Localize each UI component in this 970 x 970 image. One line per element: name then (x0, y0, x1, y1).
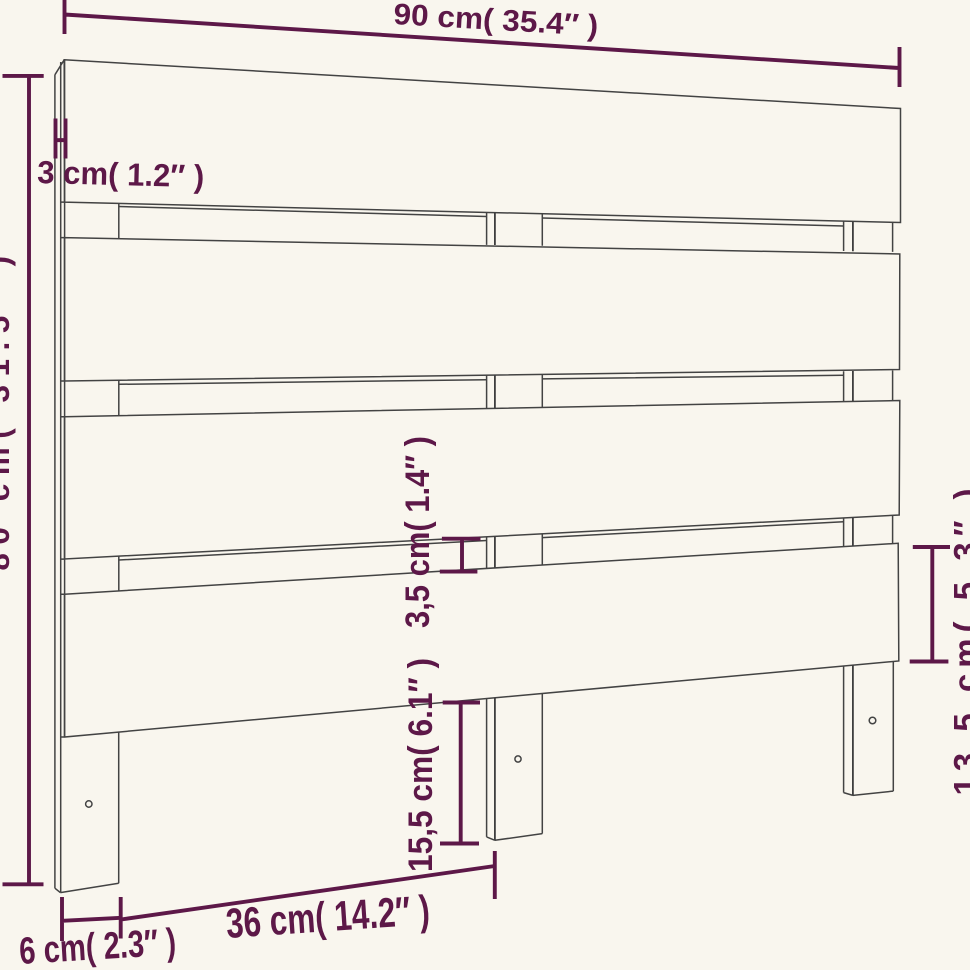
svg-text:3 cm( 1.2″ ): 3 cm( 1.2″ ) (37, 154, 205, 194)
svg-text:13,5 cm( 5.3″ ): 13,5 cm( 5.3″ ) (947, 482, 970, 795)
svg-text:6 cm( 2.3″ ): 6 cm( 2.3″ ) (18, 921, 177, 970)
svg-text:80 cm( 31.5″ ): 80 cm( 31.5″ ) (0, 247, 16, 570)
svg-text:3,5 cm( 1.4″ ): 3,5 cm( 1.4″ ) (399, 436, 437, 628)
svg-text:15,5 cm( 6.1″ ): 15,5 cm( 6.1″ ) (402, 658, 440, 872)
